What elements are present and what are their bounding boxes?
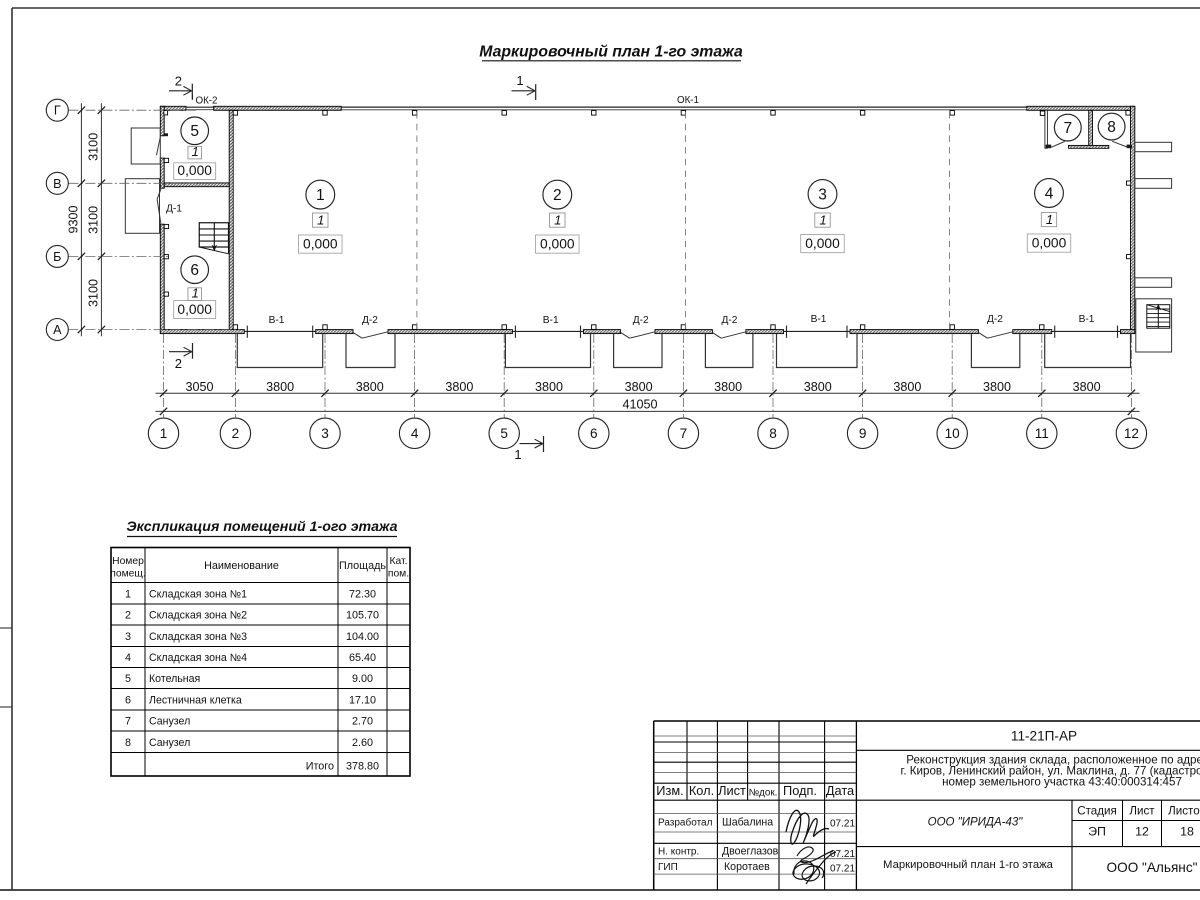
svg-text:07.21: 07.21 [830, 819, 855, 830]
svg-text:9300: 9300 [67, 205, 81, 233]
svg-text:Шабалина: Шабалина [722, 817, 773, 829]
svg-text:Кол.: Кол. [689, 783, 714, 798]
svg-text:7: 7 [680, 426, 688, 441]
svg-text:Д-2: Д-2 [722, 315, 738, 326]
svg-text:8: 8 [769, 426, 777, 441]
svg-text:0,000: 0,000 [1032, 236, 1067, 251]
svg-text:3800: 3800 [983, 380, 1011, 394]
svg-text:Кат.: Кат. [390, 556, 408, 567]
svg-text:Листов: Листов [1168, 805, 1200, 818]
svg-text:1: 1 [192, 144, 199, 159]
svg-text:5: 5 [190, 123, 199, 140]
svg-text:ОК-1: ОК-1 [677, 95, 699, 106]
svg-text:Лист: Лист [718, 783, 746, 798]
svg-text:1: 1 [516, 73, 523, 88]
svg-text:4: 4 [1045, 185, 1054, 202]
svg-text:пом.: пом. [388, 569, 409, 580]
svg-text:3100: 3100 [87, 206, 101, 234]
svg-text:1: 1 [514, 447, 521, 462]
svg-text:378.80: 378.80 [346, 761, 379, 773]
svg-text:1: 1 [160, 426, 168, 441]
svg-text:ЭП: ЭП [1088, 825, 1106, 839]
svg-text:1: 1 [317, 212, 324, 227]
svg-text:Изм.: Изм. [656, 783, 683, 798]
svg-text:0,000: 0,000 [540, 237, 575, 252]
svg-text:2.70: 2.70 [352, 715, 373, 727]
svg-text:3800: 3800 [804, 380, 832, 394]
svg-text:ООО "Альянс": ООО "Альянс" [1107, 860, 1198, 875]
svg-text:№док.: №док. [749, 788, 778, 799]
svg-text:5: 5 [500, 426, 508, 441]
svg-text:3: 3 [321, 426, 329, 441]
svg-text:07.21: 07.21 [830, 864, 855, 875]
svg-text:1: 1 [554, 212, 561, 227]
svg-text:Котельная: Котельная [149, 673, 200, 685]
svg-text:1: 1 [125, 588, 131, 600]
svg-text:1: 1 [819, 212, 826, 227]
svg-text:В-1: В-1 [1079, 314, 1095, 325]
svg-text:12: 12 [1124, 426, 1139, 441]
svg-text:2: 2 [175, 356, 182, 371]
svg-text:9: 9 [859, 426, 867, 441]
svg-text:7: 7 [125, 715, 131, 727]
svg-text:2: 2 [232, 426, 240, 441]
svg-text:Маркировочный план 1-го этажа: Маркировочный план 1-го этажа [883, 859, 1054, 871]
svg-text:Н. контр.: Н. контр. [658, 847, 699, 858]
svg-text:17.10: 17.10 [349, 694, 376, 706]
svg-text:3100: 3100 [87, 133, 101, 161]
svg-text:07.21: 07.21 [830, 849, 855, 860]
svg-text:Складская зона №1: Складская зона №1 [149, 588, 247, 600]
svg-text:105.70: 105.70 [346, 609, 379, 621]
svg-text:В-1: В-1 [543, 315, 559, 326]
svg-text:0,000: 0,000 [177, 302, 212, 317]
svg-text:65.40: 65.40 [349, 652, 376, 664]
svg-text:8: 8 [1107, 119, 1116, 136]
svg-text:2.60: 2.60 [352, 737, 373, 749]
svg-text:ОК-2: ОК-2 [195, 96, 217, 107]
svg-text:Д-2: Д-2 [633, 315, 649, 326]
svg-text:3800: 3800 [714, 380, 742, 394]
svg-text:Двоеглазов: Двоеглазов [722, 846, 779, 858]
svg-text:3800: 3800 [535, 380, 563, 394]
svg-text:В-1: В-1 [269, 315, 285, 326]
svg-text:Лестничная клетка: Лестничная клетка [149, 694, 242, 706]
svg-text:ГИП: ГИП [658, 862, 678, 873]
svg-text:Складская зона №4: Складская зона №4 [149, 652, 247, 664]
svg-text:72.30: 72.30 [349, 588, 376, 600]
svg-text:41050: 41050 [622, 397, 657, 411]
svg-text:номер земельного участка 43:40: номер земельного участка 43:40:000314:45… [942, 776, 1182, 789]
svg-text:0,000: 0,000 [177, 163, 212, 178]
svg-text:Подп.: Подп. [783, 783, 817, 798]
svg-text:Д-2: Д-2 [987, 314, 1003, 325]
svg-text:2: 2 [553, 187, 562, 204]
svg-text:Стадия: Стадия [1077, 805, 1117, 818]
svg-text:3: 3 [818, 186, 827, 203]
svg-text:Разработал: Разработал [658, 817, 713, 829]
svg-text:3100: 3100 [87, 279, 101, 307]
svg-text:12: 12 [1135, 825, 1149, 839]
svg-text:9.00: 9.00 [352, 673, 373, 685]
svg-text:8: 8 [125, 737, 131, 749]
svg-text:4: 4 [125, 652, 131, 664]
svg-text:1: 1 [192, 286, 199, 301]
svg-text:Маркировочный план 1-го этажа: Маркировочный план 1-го этажа [479, 44, 743, 61]
svg-text:помещ.: помещ. [110, 569, 145, 580]
svg-text:Б: Б [53, 250, 61, 264]
svg-text:3800: 3800 [356, 380, 384, 394]
svg-text:3800: 3800 [445, 380, 473, 394]
svg-text:104.00: 104.00 [346, 631, 379, 643]
svg-text:5: 5 [125, 673, 131, 685]
svg-text:Коротаев: Коротаев [724, 861, 770, 873]
svg-text:3800: 3800 [266, 380, 294, 394]
svg-text:0,000: 0,000 [805, 236, 840, 251]
svg-text:0,000: 0,000 [303, 237, 338, 252]
svg-text:В: В [53, 177, 61, 191]
svg-text:Наименование: Наименование [204, 560, 279, 572]
svg-text:7: 7 [1063, 120, 1072, 137]
svg-text:3800: 3800 [1073, 380, 1101, 394]
svg-text:Итого: Итого [306, 761, 334, 773]
svg-text:Номер: Номер [112, 556, 144, 567]
svg-text:2: 2 [125, 609, 131, 621]
svg-text:Складская зона №2: Складская зона №2 [149, 609, 247, 621]
svg-text:6: 6 [190, 262, 199, 279]
svg-text:Экспликация помещений 1-ого эт: Экспликация помещений 1-ого этажа [126, 519, 397, 535]
svg-text:1: 1 [1046, 212, 1053, 227]
svg-text:Д-2: Д-2 [362, 315, 378, 326]
svg-text:Площадь: Площадь [339, 560, 386, 572]
svg-text:1: 1 [316, 187, 325, 204]
svg-text:11: 11 [1035, 426, 1049, 441]
svg-text:Санузел: Санузел [149, 737, 190, 749]
svg-text:3800: 3800 [893, 380, 921, 394]
svg-text:Лист: Лист [1129, 805, 1155, 818]
svg-text:3050: 3050 [185, 380, 213, 394]
svg-text:11-21П-АР: 11-21П-АР [1011, 729, 1077, 744]
svg-text:Д-1: Д-1 [166, 203, 182, 214]
svg-text:3: 3 [125, 631, 131, 643]
svg-text:4: 4 [411, 426, 419, 441]
svg-text:6: 6 [125, 694, 131, 706]
svg-text:Складская зона №3: Складская зона №3 [149, 631, 247, 643]
svg-text:18: 18 [1180, 825, 1194, 839]
svg-text:6: 6 [590, 426, 598, 441]
svg-text:3800: 3800 [625, 380, 653, 394]
svg-text:10: 10 [945, 426, 961, 441]
svg-text:А: А [53, 323, 62, 337]
svg-text:Г: Г [54, 104, 61, 118]
svg-text:Санузел: Санузел [149, 715, 190, 727]
svg-text:В-1: В-1 [811, 314, 827, 325]
svg-text:ООО "ИРИДА-43": ООО "ИРИДА-43" [928, 817, 1024, 829]
svg-text:Дата: Дата [826, 783, 855, 798]
svg-text:2: 2 [175, 74, 182, 89]
